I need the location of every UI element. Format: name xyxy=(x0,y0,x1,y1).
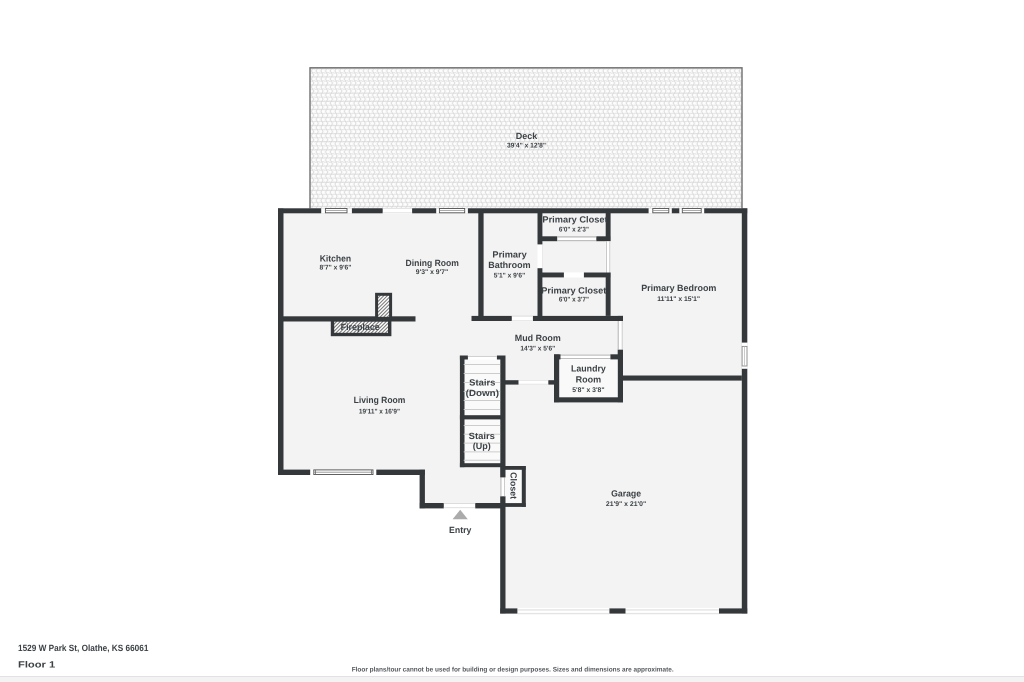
svg-text:Entry: Entry xyxy=(449,525,471,535)
svg-text:Fireplace: Fireplace xyxy=(341,322,380,332)
svg-text:Primary Bedroom: Primary Bedroom xyxy=(641,283,716,293)
svg-text:Room: Room xyxy=(576,375,602,385)
svg-text:6'0" x 2'3": 6'0" x 2'3" xyxy=(559,226,589,233)
svg-text:Mud Room: Mud Room xyxy=(515,333,561,343)
svg-text:Floor plans/tour cannot be use: Floor plans/tour cannot be used for buil… xyxy=(352,667,674,674)
svg-text:Floor 1: Floor 1 xyxy=(18,659,55,669)
svg-text:Stairs: Stairs xyxy=(469,431,495,441)
svg-text:14'3" x 5'6": 14'3" x 5'6" xyxy=(520,346,555,353)
svg-text:(Down): (Down) xyxy=(466,388,499,398)
svg-text:Stairs: Stairs xyxy=(469,378,495,388)
svg-text:9'3" x 9'7": 9'3" x 9'7" xyxy=(416,269,448,276)
svg-text:Primary Closet: Primary Closet xyxy=(542,215,607,225)
svg-text:Kitchen: Kitchen xyxy=(320,253,351,263)
svg-text:Garage: Garage xyxy=(611,489,641,499)
svg-text:Laundry: Laundry xyxy=(571,363,606,373)
svg-text:39'4" x 12'8": 39'4" x 12'8" xyxy=(507,142,546,149)
svg-text:Bathroom: Bathroom xyxy=(488,260,530,270)
svg-text:6'0" x 3'7": 6'0" x 3'7" xyxy=(559,297,589,304)
svg-text:19'11" x 16'9": 19'11" x 16'9" xyxy=(359,408,400,415)
svg-text:Primary: Primary xyxy=(492,250,526,260)
svg-text:Living Room: Living Room xyxy=(354,395,406,405)
svg-text:21'9" x 21'0": 21'9" x 21'0" xyxy=(606,501,646,508)
svg-text:5'1" x 9'6": 5'1" x 9'6" xyxy=(494,273,526,280)
svg-text:11'11" x 15'1": 11'11" x 15'1" xyxy=(657,296,700,303)
svg-text:Dining Room: Dining Room xyxy=(406,258,459,268)
svg-text:5'8" x 3'8": 5'8" x 3'8" xyxy=(572,387,604,394)
svg-text:Primary Closet: Primary Closet xyxy=(541,285,606,295)
svg-text:8'7" x 9'6": 8'7" x 9'6" xyxy=(320,265,352,272)
svg-text:Deck: Deck xyxy=(516,131,539,141)
svg-text:1529 W Park St, Olathe, KS 660: 1529 W Park St, Olathe, KS 66061 xyxy=(18,643,148,653)
svg-text:(Up): (Up) xyxy=(473,441,491,451)
svg-text:Closet: Closet xyxy=(509,472,519,499)
